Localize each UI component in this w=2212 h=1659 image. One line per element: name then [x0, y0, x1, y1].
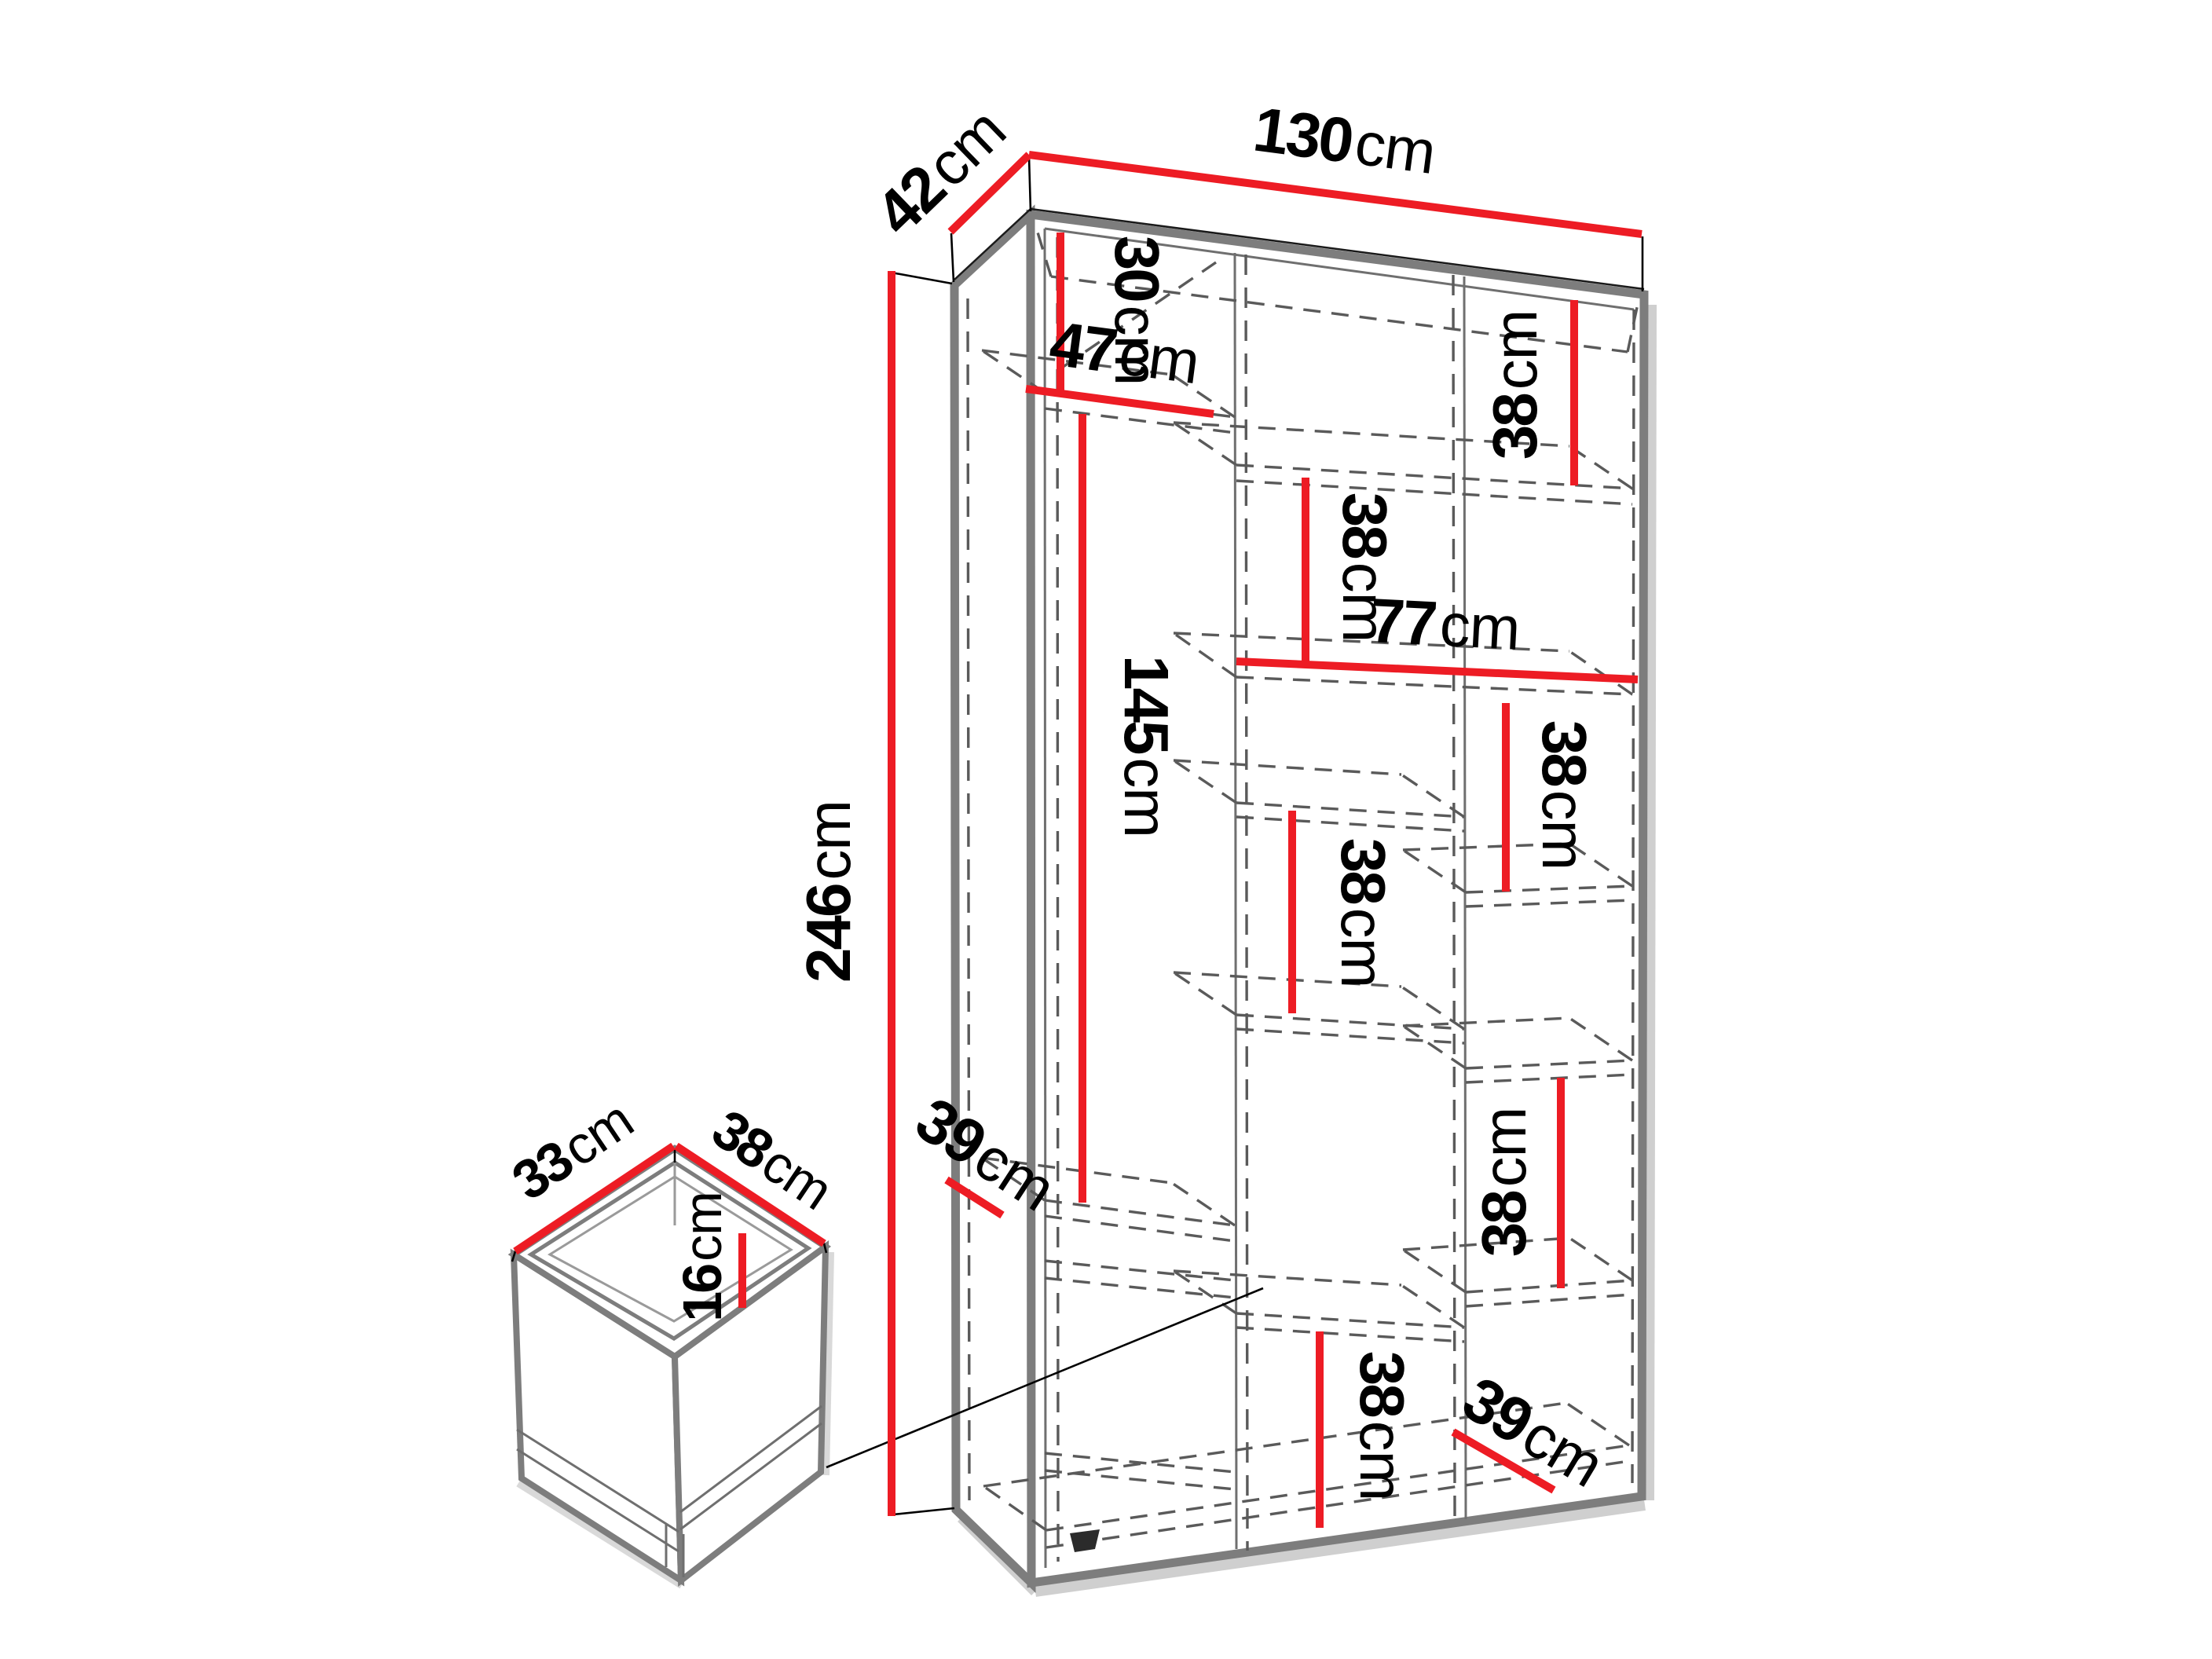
- dim-label-shelf-f: 38cm: [1347, 1351, 1417, 1500]
- dim-label-drawer-height: 16cm: [672, 1192, 733, 1321]
- dim-label-shelf-c: 38cm: [1529, 720, 1599, 870]
- dim-label-hanging-height: 145cm: [1111, 655, 1181, 837]
- wardrobe-dimension-diagram: 130cm 42cm 246cm 30cm 47cm 145cm 38cm 38…: [0, 0, 2212, 1659]
- dim-label-right-col-width: 77cm: [1368, 585, 1522, 663]
- inner-left-wall-line: [1045, 229, 1046, 1568]
- dim-label-depth: 42cm: [862, 94, 1018, 248]
- dim-label-shelf-d: 38cm: [1328, 838, 1398, 987]
- dim-label-shelf-e: 38cm: [1469, 1108, 1539, 1257]
- diagram-stage: 130cm 42cm 246cm 30cm 47cm 145cm 38cm 38…: [0, 0, 2212, 1659]
- inner-left-dashed: [1057, 237, 1058, 1562]
- dim-label-height: 246cm: [793, 800, 863, 983]
- dim-label-shelf-a: 38cm: [1480, 310, 1550, 460]
- cabinet-left-side-face: [954, 214, 1031, 1583]
- partition-2-front: [1464, 276, 1466, 1519]
- partition-1-front: [1235, 253, 1236, 1549]
- shadow-right: [1649, 305, 1651, 1500]
- dim-label-width: 130cm: [1250, 93, 1440, 187]
